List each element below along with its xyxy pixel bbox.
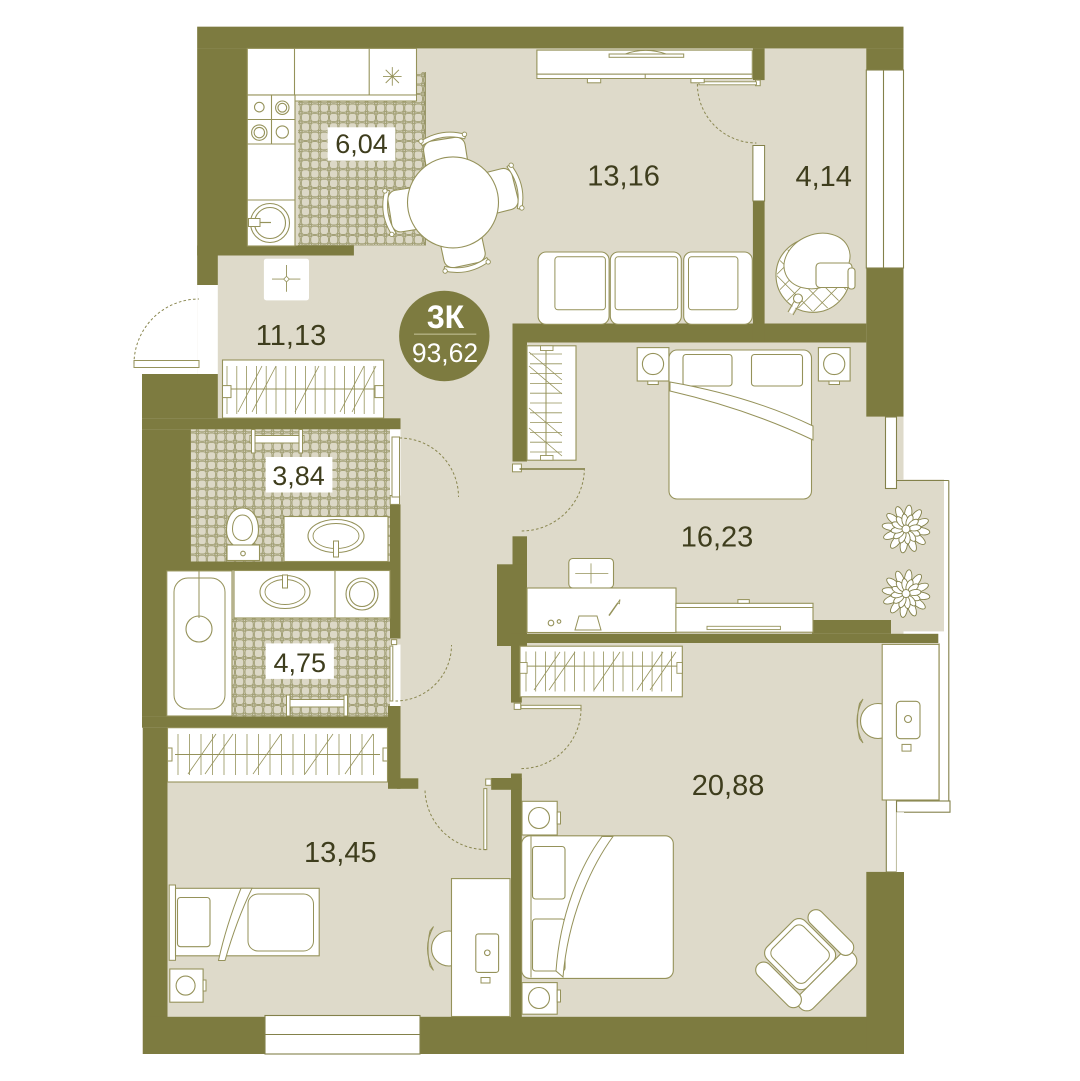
- svg-text:3,84: 3,84: [272, 461, 325, 491]
- svg-text:4,14: 4,14: [795, 161, 851, 193]
- svg-text:16,23: 16,23: [681, 522, 754, 554]
- svg-text:4,75: 4,75: [274, 648, 327, 678]
- svg-text:20,88: 20,88: [692, 770, 765, 802]
- svg-text:11,13: 11,13: [256, 320, 326, 352]
- svg-text:93,62: 93,62: [412, 338, 478, 368]
- svg-text:13,45: 13,45: [304, 837, 377, 869]
- svg-text:3К: 3К: [427, 299, 465, 335]
- svg-text:6,04: 6,04: [335, 129, 388, 159]
- svg-text:13,16: 13,16: [587, 161, 660, 193]
